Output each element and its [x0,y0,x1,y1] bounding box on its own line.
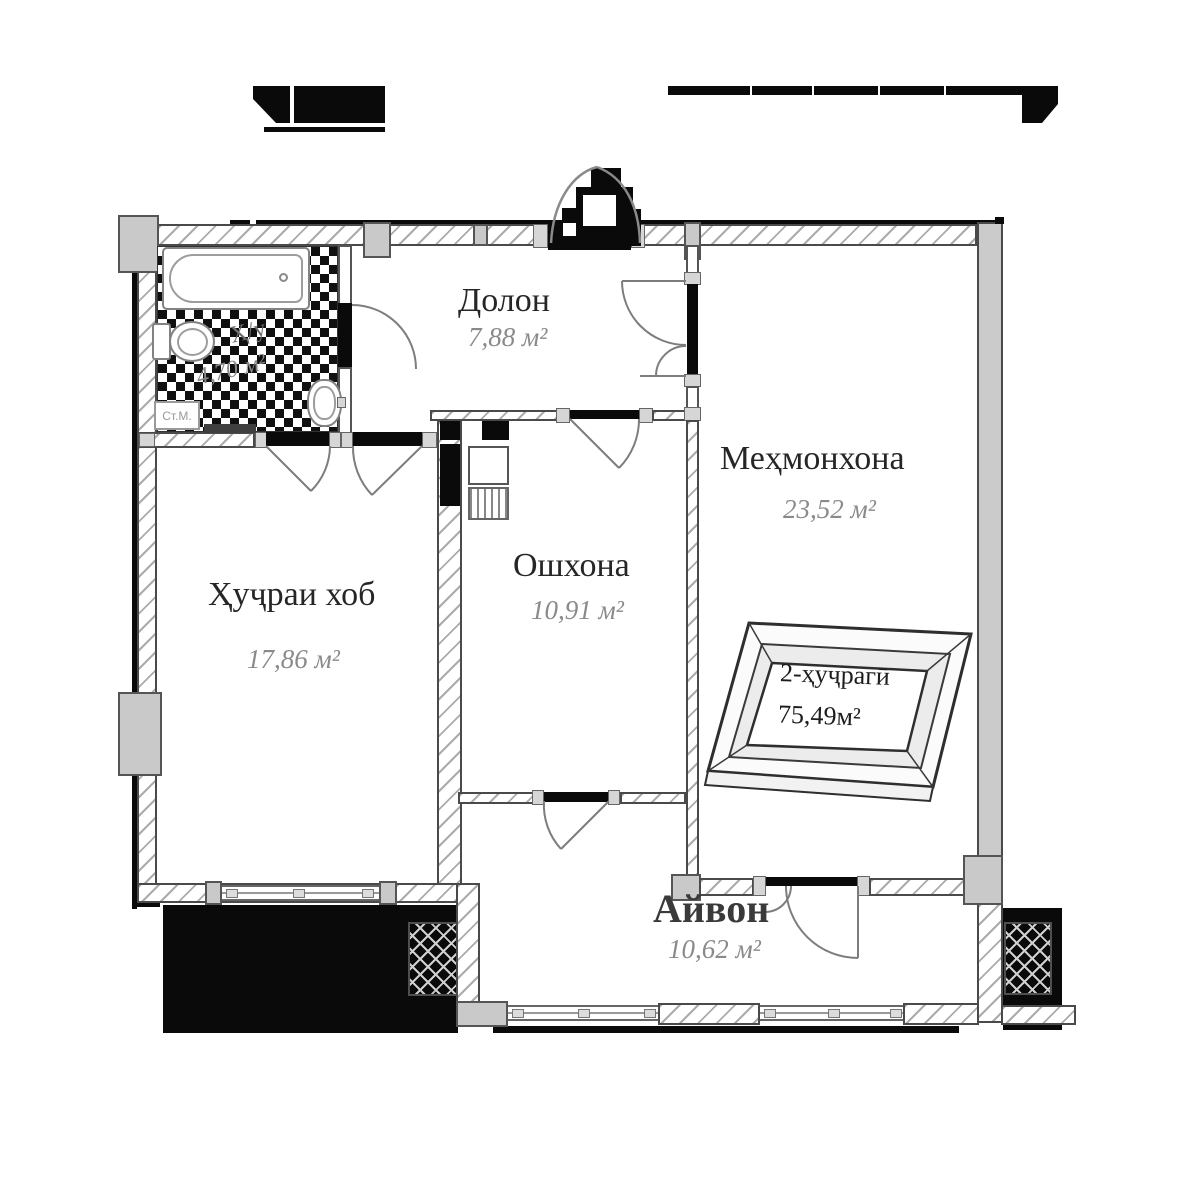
room-area-kitchen: 10,91 м² [531,597,624,624]
shadow-top-bar [668,86,1058,95]
shadow-top-left [253,86,385,123]
room-name-kitchen: Ошхона [513,549,630,583]
bedroom-door1-arc [311,446,330,491]
kitchen-door-arc [619,419,639,468]
stamp-line2: 75,49м² [778,702,862,731]
bathroom-door-arc [352,305,416,369]
bedroom-door2-arc [353,446,372,495]
kitchen-door-leaf [570,419,619,468]
room-name-hallway: Долон [458,284,550,318]
stamp-line1: 2-ҳуҷрагӣ [780,660,891,690]
room-area-living: 23,52 м² [783,496,876,523]
living-door-small-arc [656,346,686,376]
living-veranda-door-arc [786,886,858,958]
bedroom-door1-leaf [266,446,311,491]
room-area-bedroom: 17,86 м² [247,646,340,673]
kitchen-veranda-door-arc [544,801,561,849]
kitchen-veranda-door-leaf [561,801,609,849]
living-door-arc [622,281,686,345]
room-area-hallway: 7,88 м² [468,324,547,351]
room-name-bedroom: Ҳуҷраи хоб [208,578,375,612]
room-name-veranda: Айвон [653,889,769,929]
plan-linework [0,0,1181,1181]
bedroom-door2-leaf [372,446,422,495]
room-name-living: Меҳмонхона [720,442,905,476]
shadow-top-right [1022,86,1058,123]
floor-plan: Ст.М. [0,0,1181,1181]
room-area-veranda: 10,62 м² [668,936,761,963]
